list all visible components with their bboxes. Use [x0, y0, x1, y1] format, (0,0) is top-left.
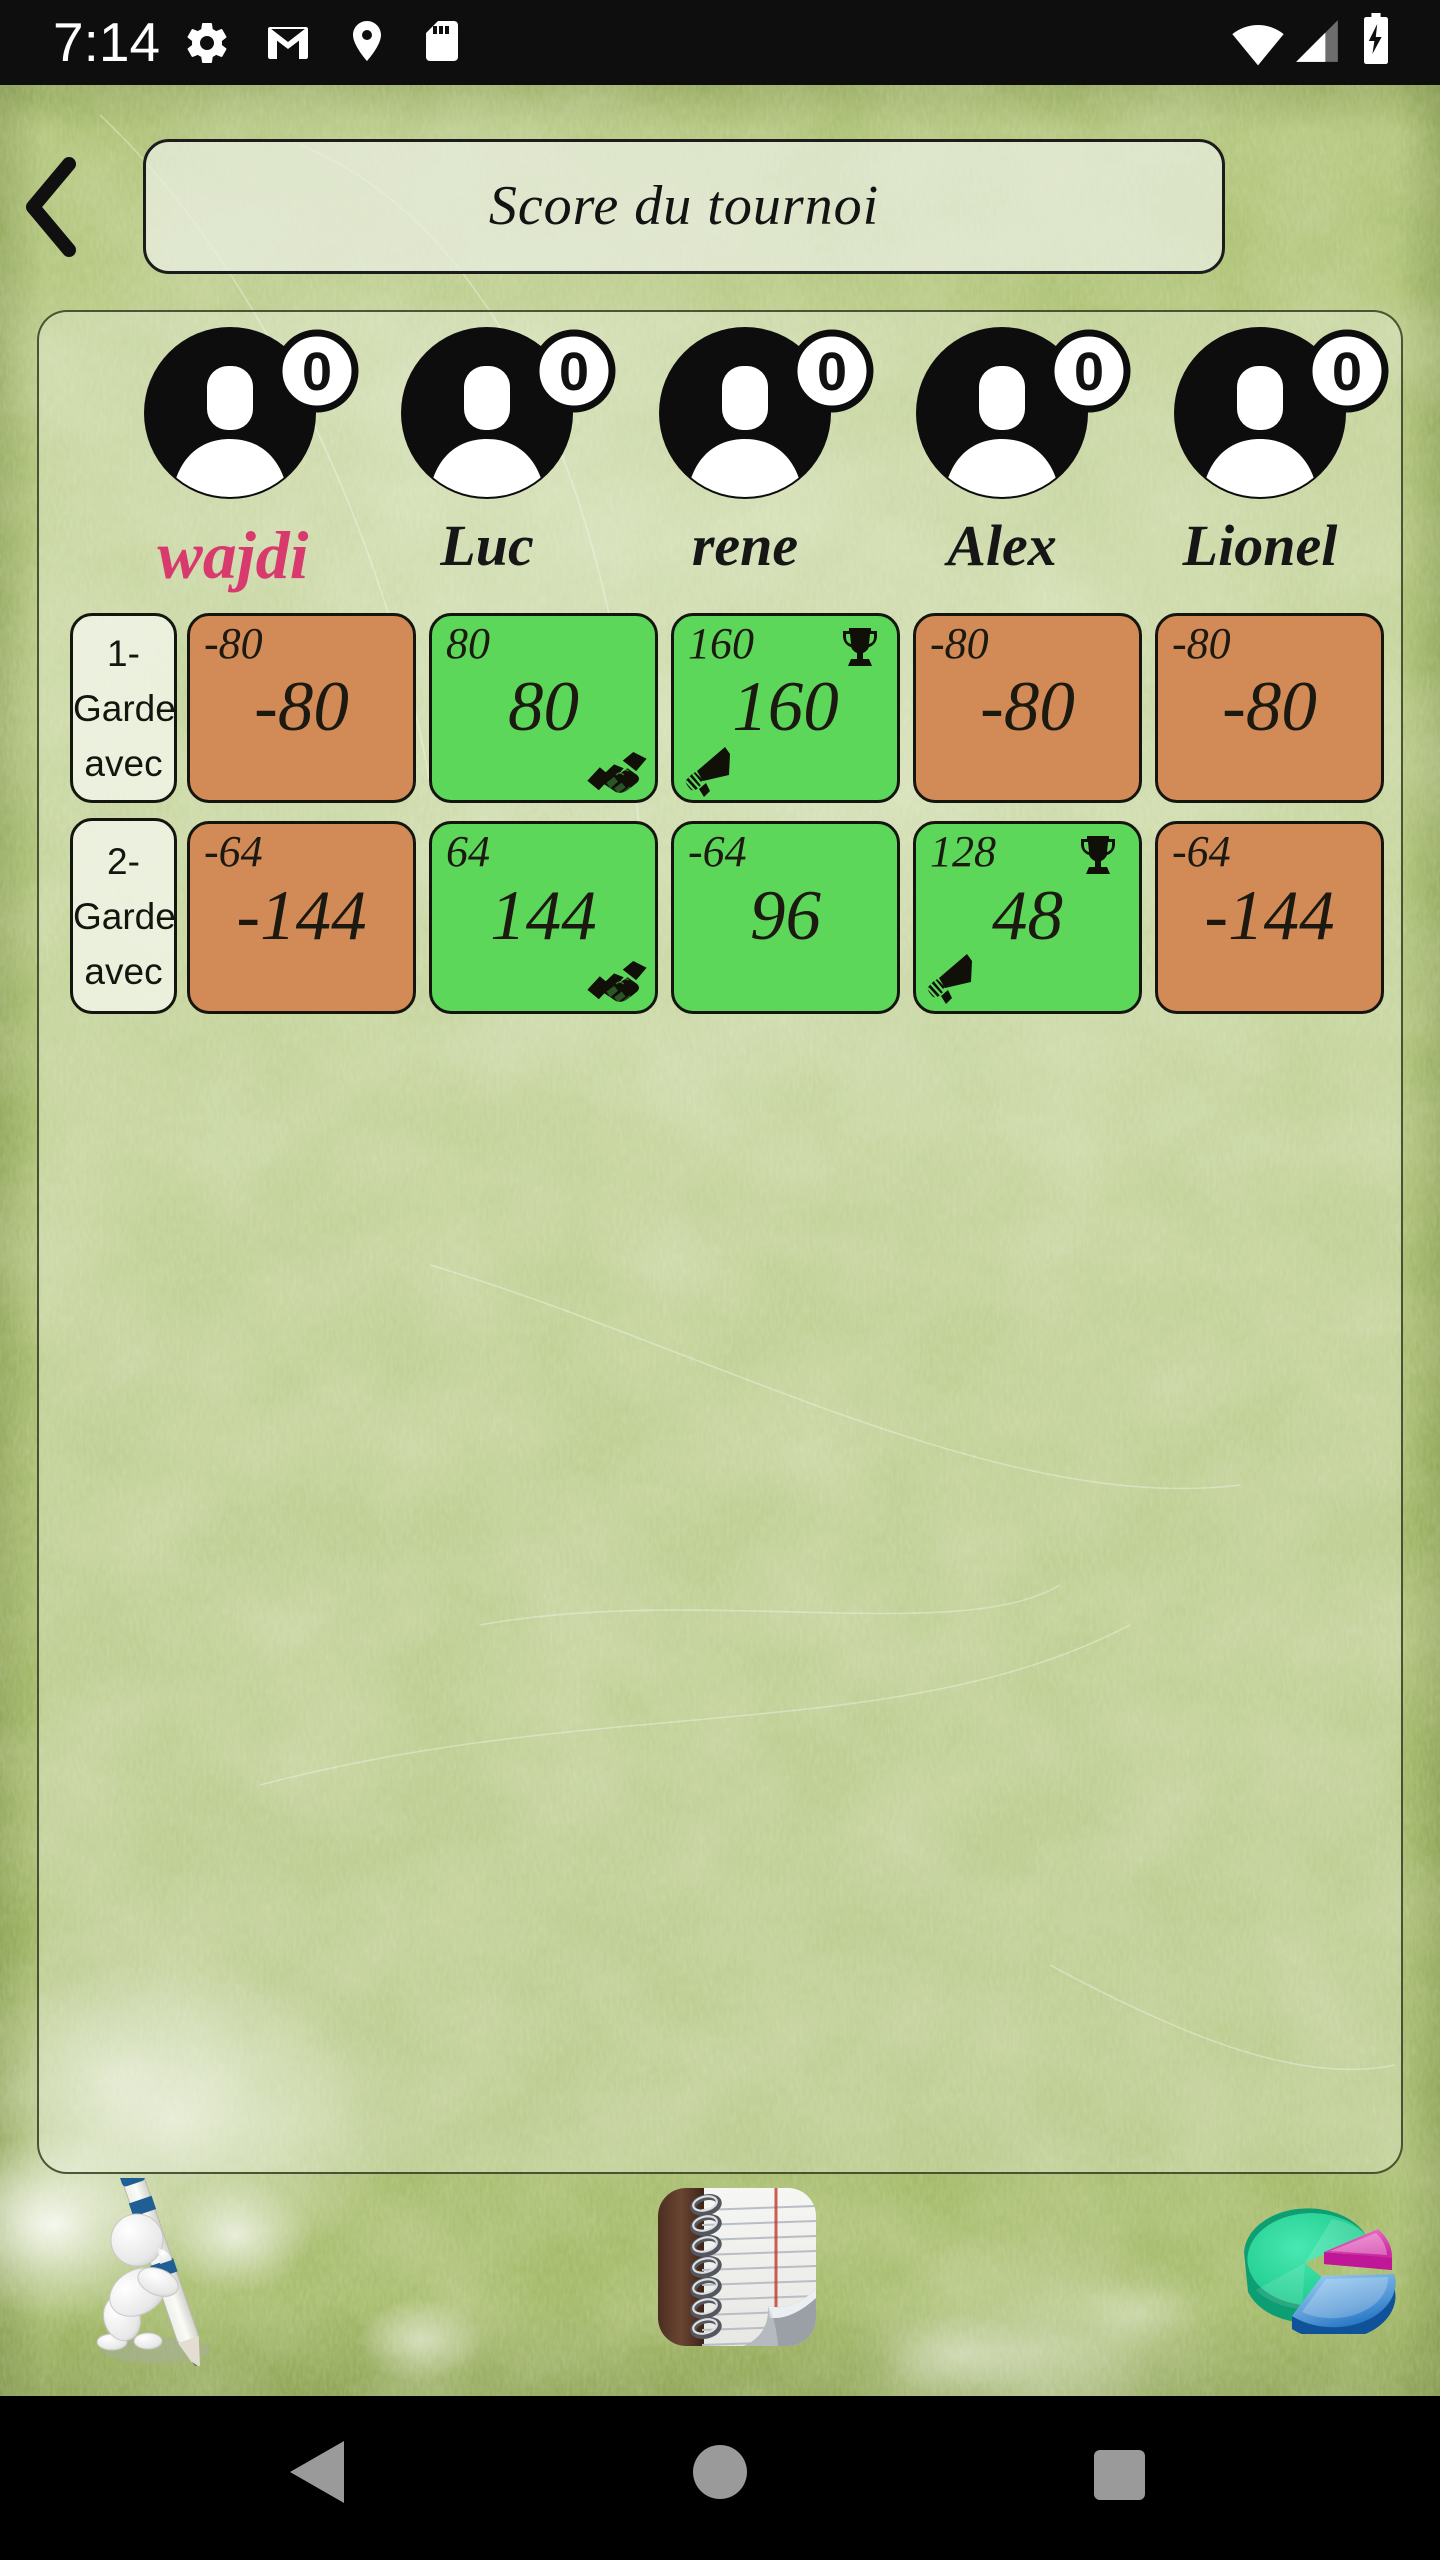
svg-text:0: 0 — [817, 342, 847, 402]
svg-text:0: 0 — [1074, 342, 1104, 402]
svg-text:0: 0 — [559, 342, 589, 402]
svg-text:0: 0 — [302, 342, 332, 402]
svg-text:0: 0 — [1332, 342, 1362, 402]
